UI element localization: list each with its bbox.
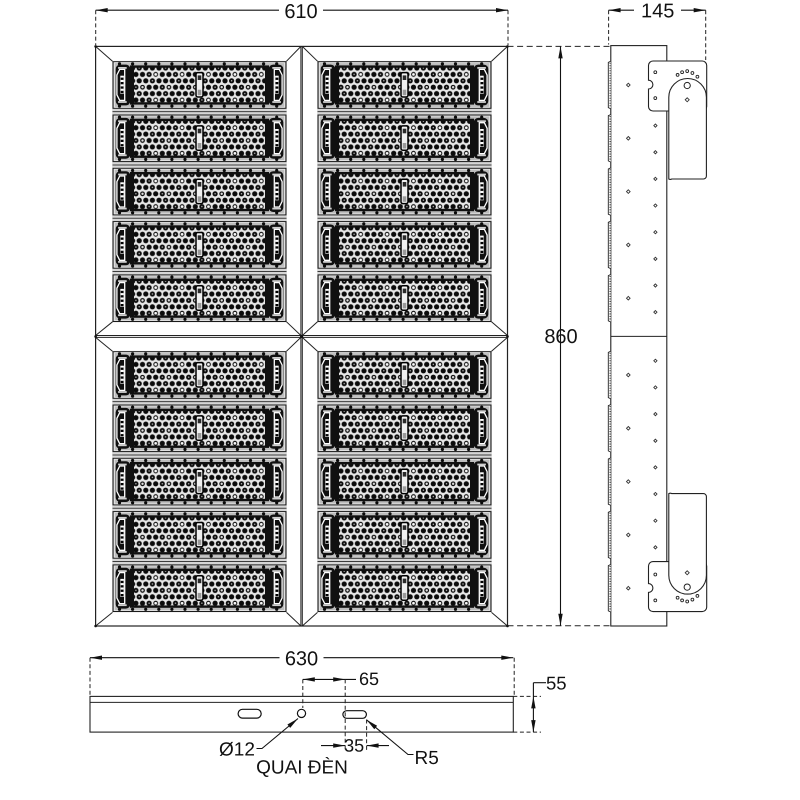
svg-text:860: 860: [544, 326, 577, 348]
svg-text:R5: R5: [414, 748, 438, 769]
svg-text:145: 145: [641, 0, 674, 22]
svg-text:Ø12: Ø12: [219, 740, 255, 761]
svg-text:55: 55: [546, 673, 567, 694]
svg-text:610: 610: [284, 1, 317, 23]
svg-text:65: 65: [359, 669, 379, 689]
svg-text:35: 35: [344, 736, 364, 756]
svg-text:630: 630: [285, 648, 318, 670]
svg-text:QUAI ĐÈN: QUAI ĐÈN: [256, 756, 348, 778]
